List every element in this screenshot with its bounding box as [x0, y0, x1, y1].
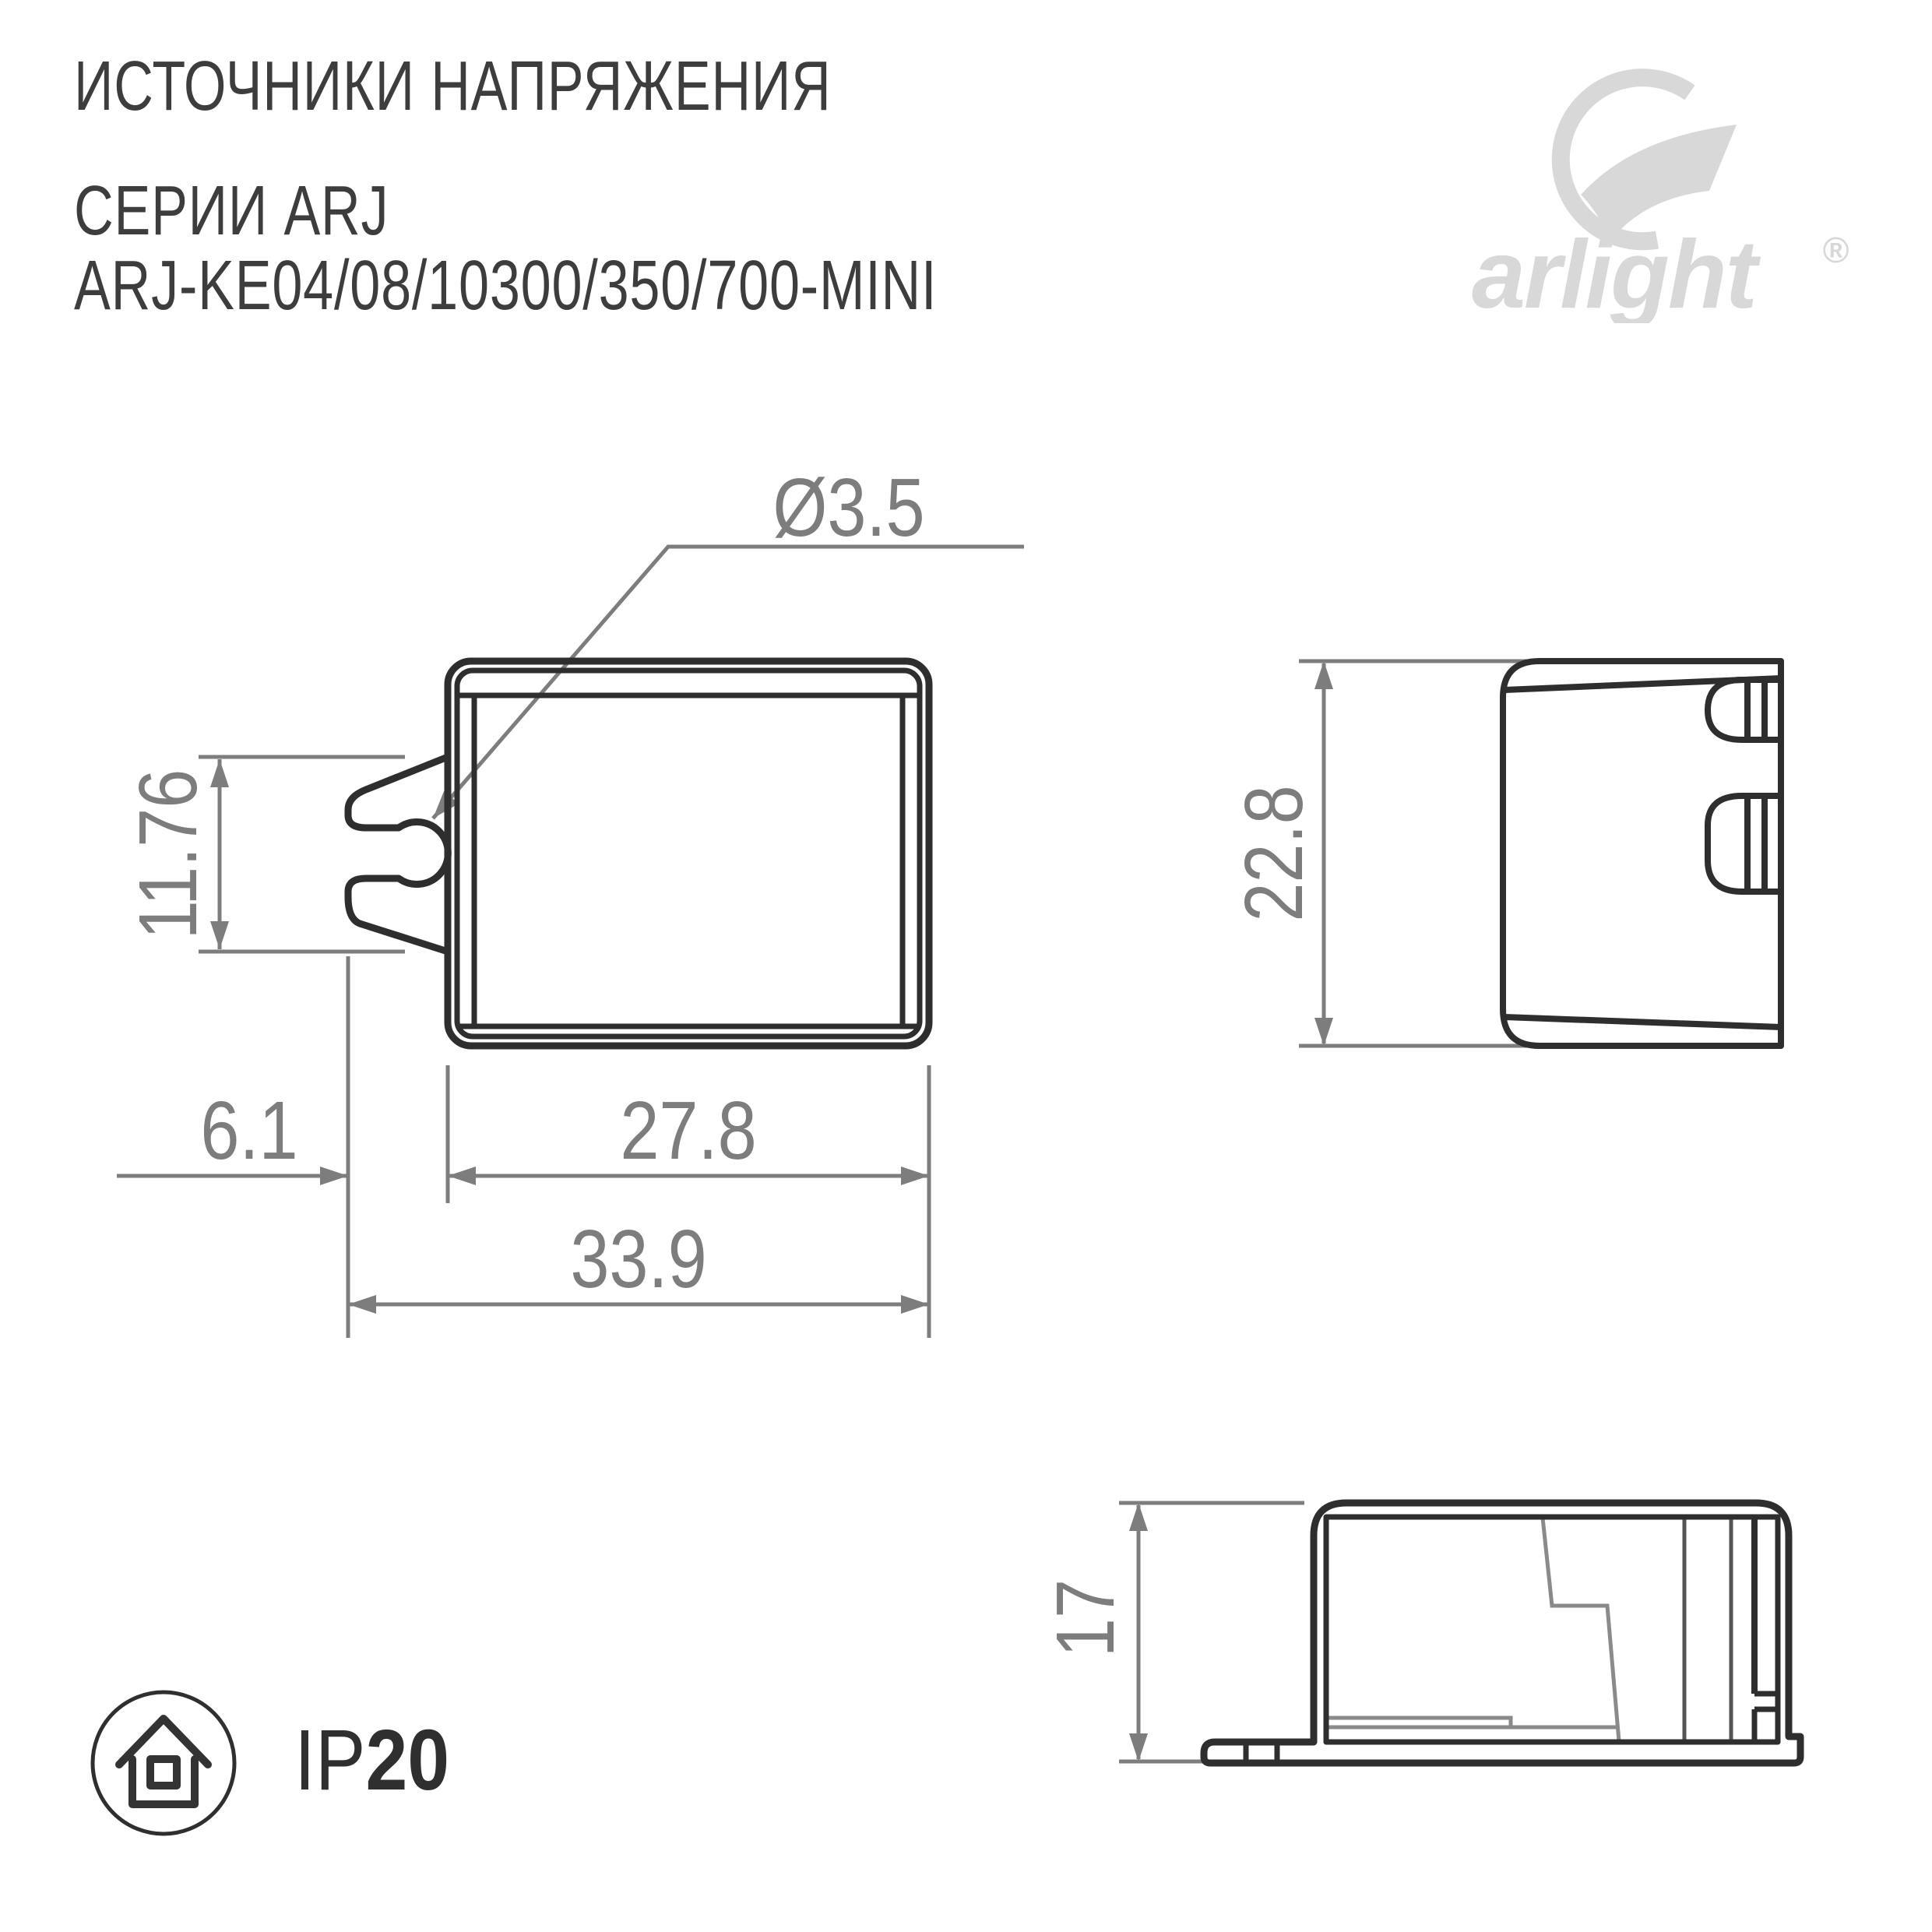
- arrow-up-icon: [1314, 661, 1333, 689]
- profile-mid-ribs: [1684, 1517, 1731, 1742]
- arrow-right-icon: [901, 1295, 929, 1314]
- front-inner-case: [457, 670, 920, 1036]
- arrow-up-icon: [1129, 1503, 1148, 1531]
- dimension-profile-height: [1119, 1503, 1304, 1761]
- datasheet-page: ИСТОЧНИКИ НАПРЯЖЕНИЯ СЕРИИ ARJ ARJ-KE04/…: [0, 0, 1932, 1932]
- arrow-right-icon: [901, 1167, 929, 1185]
- side-outer-case: [1503, 661, 1781, 1046]
- indoor-use-icon: [90, 1689, 238, 1837]
- front-view: [348, 661, 929, 1046]
- hole-callout: [433, 547, 1024, 818]
- dimension-layer: [117, 547, 1631, 1761]
- dimension-side-height: [1299, 661, 1631, 1046]
- technical-drawing: Ø3.5 11.76 6.1 27.8 33.9 22.8 17: [0, 0, 1932, 1932]
- house-icon: [119, 1719, 208, 1804]
- total-width-label: 33.9: [570, 1212, 706, 1305]
- ip-rating-value: 20: [365, 1712, 449, 1808]
- profile-view: [1204, 1503, 1800, 1763]
- hole-diameter-label: Ø3.5: [772, 461, 924, 554]
- side-height-label: 22.8: [1227, 785, 1320, 921]
- body-width-label: 27.8: [620, 1084, 756, 1177]
- ip-rating-badge: IP20: [294, 1718, 449, 1804]
- leader-line: [433, 547, 1024, 818]
- profile-internal-contours: [1328, 1518, 1619, 1741]
- arrow-right-icon: [320, 1167, 348, 1185]
- arrow-left-icon: [348, 1295, 376, 1314]
- side-bottom-seam: [1504, 1017, 1781, 1027]
- arrow-left-icon: [448, 1167, 476, 1185]
- profile-height-label: 17: [1039, 1579, 1131, 1657]
- profile-outer-case: [1204, 1503, 1800, 1763]
- dimension-labels: Ø3.5 11.76 6.1 27.8 33.9 22.8 17: [121, 461, 1320, 1657]
- arrow-down-icon: [1314, 1018, 1333, 1046]
- tab-height-label: 11.76: [121, 769, 214, 940]
- profile-inner-case: [1326, 1517, 1778, 1742]
- tab-offset-label: 6.1: [200, 1084, 297, 1177]
- profile-case-lines: [1204, 1503, 1800, 1763]
- ip-rating-prefix: IP: [294, 1712, 365, 1808]
- mounting-tab: [348, 757, 448, 952]
- internal-step-contour: [1543, 1518, 1619, 1741]
- side-view: [1503, 661, 1781, 1046]
- house-window: [150, 1759, 177, 1786]
- arrow-down-icon: [1129, 1733, 1148, 1761]
